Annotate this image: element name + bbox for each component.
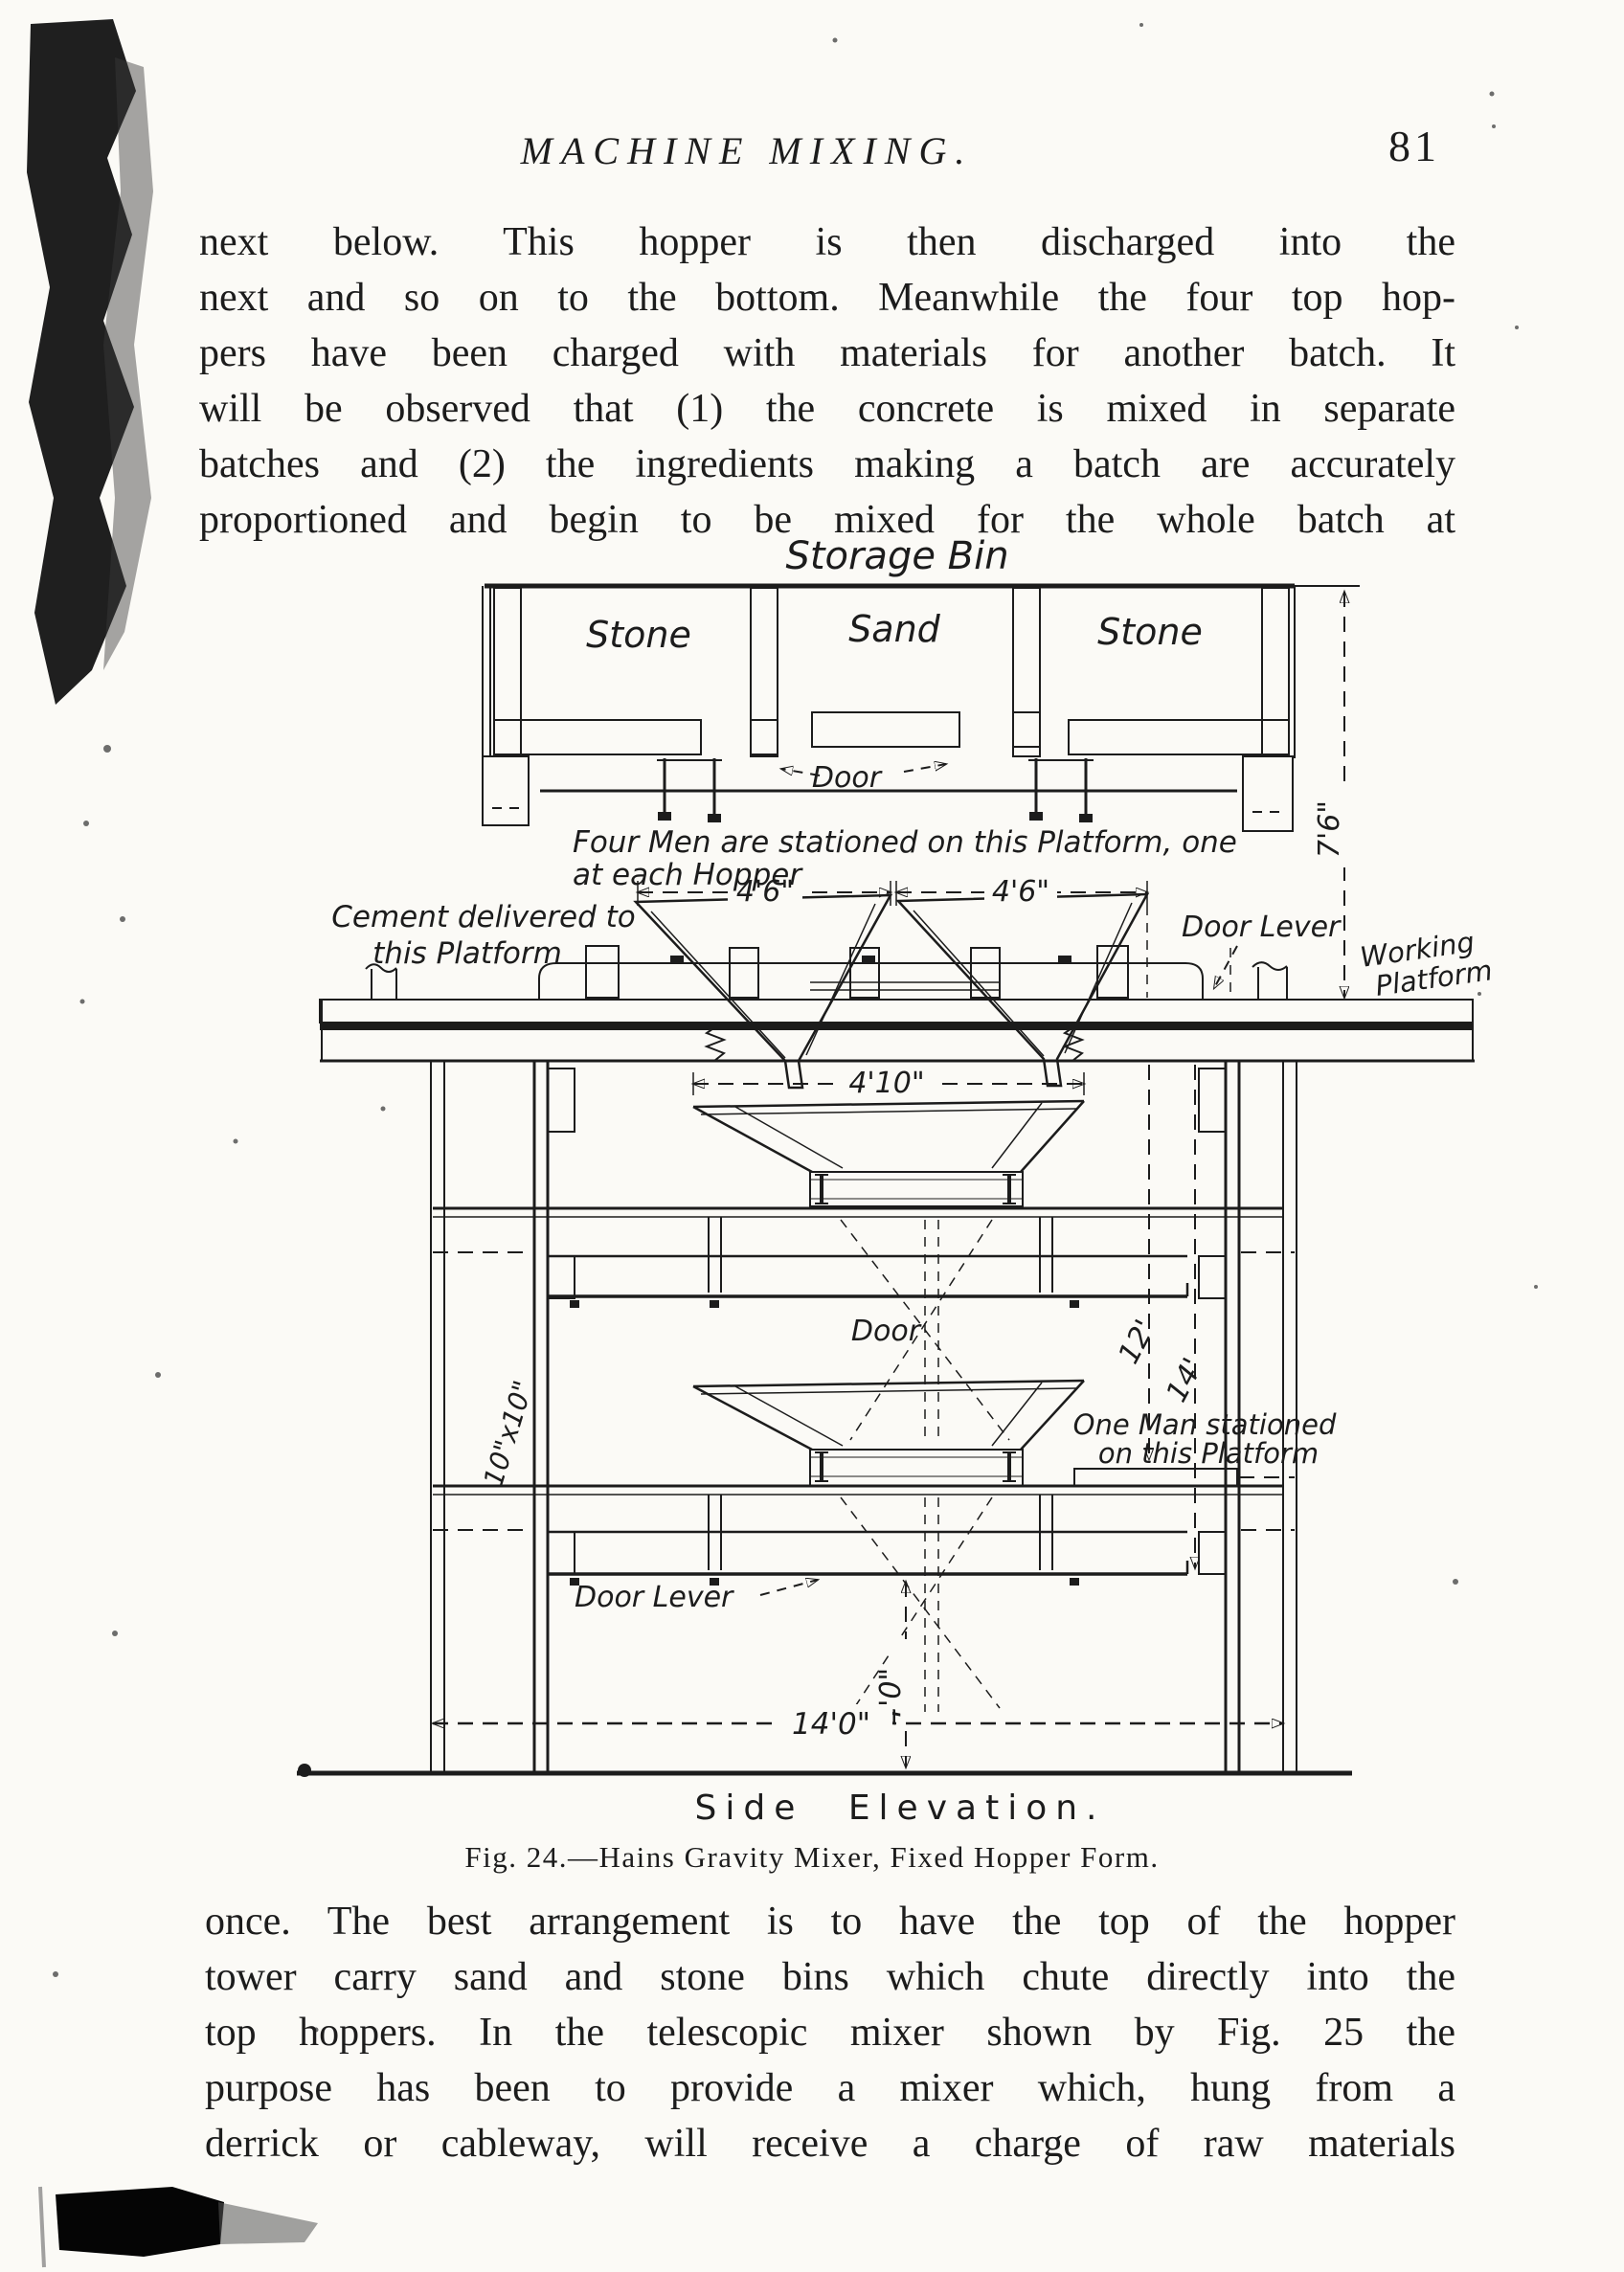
- dim-12ft-label: 12': [1112, 1315, 1162, 1369]
- bin-label-stone-left: Stone: [586, 614, 691, 656]
- text-line: batches and (2) the ingredients making a…: [199, 437, 1455, 492]
- door-lever-lower-label: Door Lever: [575, 1581, 734, 1614]
- dimension-12ft-14ft: 12' 14': [1112, 1065, 1210, 1568]
- text-line: top hoppers. In the telescopic mixer sho…: [205, 2005, 1455, 2060]
- text-line: will be observed that (1) the concrete i…: [199, 381, 1455, 437]
- door-lever-upper-label: Door Lever: [1182, 911, 1342, 944]
- text-line: next below. This hopper is then discharg…: [199, 214, 1455, 270]
- dim-4ft6-right-label: 4'6": [992, 875, 1049, 909]
- text-line: once. The best arrangement is to have th…: [205, 1894, 1455, 1949]
- bin-door-label: Door: [812, 761, 883, 795]
- ground-line: [297, 1764, 1352, 1777]
- dim-14ft-label: 14': [1160, 1353, 1210, 1407]
- paragraph-top: next below. This hopper is then discharg…: [199, 214, 1455, 548]
- figure-caption: Fig. 24.—Hains Gravity Mixer, Fixed Hopp…: [0, 1840, 1624, 1875]
- text-line: pers have been charged with materials fo…: [199, 326, 1455, 381]
- paragraph-bottom: once. The best arrangement is to have th…: [205, 1894, 1455, 2171]
- text-line: next and so on to the bottom. Meanwhile …: [199, 270, 1455, 326]
- ink-blot-bottom-tail: [218, 2202, 318, 2244]
- four-men-note-line1: Four Men are stationed on this Platform,…: [573, 825, 1237, 860]
- dim-14ft0-label: 14'0": [792, 1707, 870, 1742]
- running-head: MACHINE MIXING.: [450, 128, 1044, 173]
- dim-7ft6-label: 7'6": [1313, 800, 1346, 858]
- cement-note-line2: this Platform: [372, 936, 562, 971]
- text-line: derrick or cableway, will receive a char…: [205, 2116, 1455, 2171]
- one-man-note-line2: on this Platform: [1098, 1437, 1319, 1470]
- working-platform: [320, 1000, 1475, 1061]
- dimension-4ft10: 4'10": [693, 1067, 1084, 1100]
- door-mid-label: Door: [851, 1315, 922, 1348]
- text-line: purpose has been to provide a mixer whic…: [205, 2060, 1455, 2116]
- one-man-note-line1: One Man stationed: [1073, 1408, 1337, 1441]
- scan-edge-line: [40, 2187, 44, 2267]
- spring-symbol: [707, 1026, 724, 1061]
- view-label: Side Elevation.: [695, 1788, 1106, 1828]
- text-line: tower carry sand and stone bins which ch…: [205, 1949, 1455, 2005]
- cement-note-line1: Cement delivered to: [331, 900, 636, 934]
- four-men-note-line2: at each Hopper: [573, 858, 803, 892]
- ink-blot-bottom: [56, 2187, 224, 2257]
- scanned-book-page: MACHINE MIXING. 81 next below. This hopp…: [0, 0, 1624, 2272]
- dim-post-section-label: 10"x10": [478, 1377, 540, 1490]
- page-number: 81: [1388, 121, 1440, 171]
- bin-label-stone-right: Stone: [1097, 611, 1203, 653]
- storage-bin: Storage Bin Stone Sand Stone: [483, 536, 1295, 831]
- storage-bin-title: Storage Bin: [785, 536, 1008, 578]
- dimension-14ft0: 14'0": [433, 1704, 1283, 1742]
- dim-4ft10-label: 4'10": [848, 1067, 924, 1100]
- figure-24-diagram: Storage Bin Stone Sand Stone: [0, 536, 1624, 1842]
- bin-label-sand: Sand: [848, 608, 940, 650]
